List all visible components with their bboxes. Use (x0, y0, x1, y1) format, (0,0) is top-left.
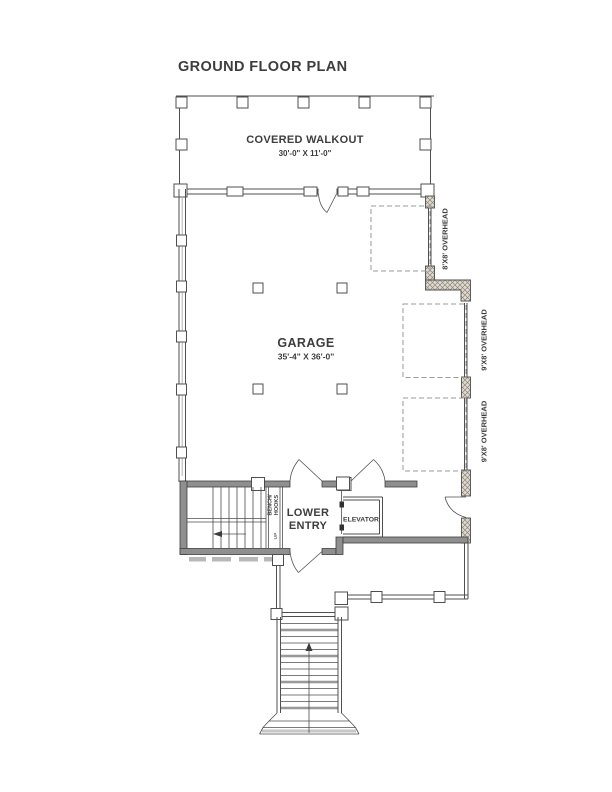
overhead-9x8-lower-label: 9'X8' OVERHEAD (480, 400, 489, 462)
parking-bay-8x8-dashed (371, 206, 430, 271)
entry-south-wall (290, 537, 468, 573)
lower-entry-label-line2: ENTRY (289, 520, 328, 532)
lower-entry-label-line1: LOWER (287, 507, 329, 519)
vestibule-garage-door-swing (351, 460, 385, 482)
elevator-label: ELEVATOR (343, 517, 379, 524)
wall-step-hatched (426, 280, 471, 301)
overhead-door-8x8: 8'X8' OVERHEAD (371, 196, 471, 301)
elevator-door-stub-bottom (340, 525, 345, 531)
overhead-doors-9x8: 9'X8' OVERHEAD 9'X8' OVERHEAD (403, 303, 489, 496)
elevator-door-stub-top (340, 502, 345, 508)
porch-railings (271, 543, 468, 620)
garage-room: GARAGE 35'-4" X 36'-0" (253, 283, 347, 394)
garage-west-wall (177, 189, 187, 482)
exterior-stair (260, 617, 360, 734)
floor-plan-page: GROUND FLOOR PLAN COVERED WALKOUT 30'-0"… (0, 0, 612, 792)
elevator-room: ELEVATOR (337, 477, 383, 537)
garage-south-wall (183, 460, 417, 491)
garage-north-wall (174, 184, 434, 213)
stair-up-label: UP (273, 532, 279, 539)
bench-label-line1: BENCH/ (268, 494, 274, 516)
stair-direction-arrow (213, 531, 246, 537)
entry-exterior-door-swing (290, 552, 322, 573)
parking-bay-9x8-upper-dashed (403, 304, 466, 378)
bench-label-line2: HOOKS (274, 495, 280, 516)
overhead-9x8-upper-label: 9'X8' OVERHEAD (480, 309, 489, 371)
covered-walkout-deck: COVERED WALKOUT 30'-0" X 11'-0" (176, 96, 434, 189)
covered-walkout-dimensions: 30'-0" X 11'-0" (279, 149, 332, 158)
covered-walkout-label: COVERED WALKOUT (246, 134, 364, 146)
page-title: GROUND FLOOR PLAN (178, 59, 348, 75)
lower-entry-garage-door-swing (290, 460, 322, 482)
east-entry-door (445, 497, 471, 543)
lower-entry-room: LOWER ENTRY (287, 507, 329, 532)
interior-stair: BENCH/ HOOKS UP (180, 481, 290, 562)
garage-dimensions: 35'-4" X 36'-0" (278, 352, 335, 362)
floor-plan-drawing: GROUND FLOOR PLAN COVERED WALKOUT 30'-0"… (0, 0, 612, 792)
garage-north-door-swing (319, 194, 337, 213)
garage-label: GARAGE (277, 336, 334, 350)
overhead-8x8-label: 8'X8' OVERHEAD (441, 208, 450, 270)
parking-bay-9x8-lower-dashed (403, 398, 466, 471)
